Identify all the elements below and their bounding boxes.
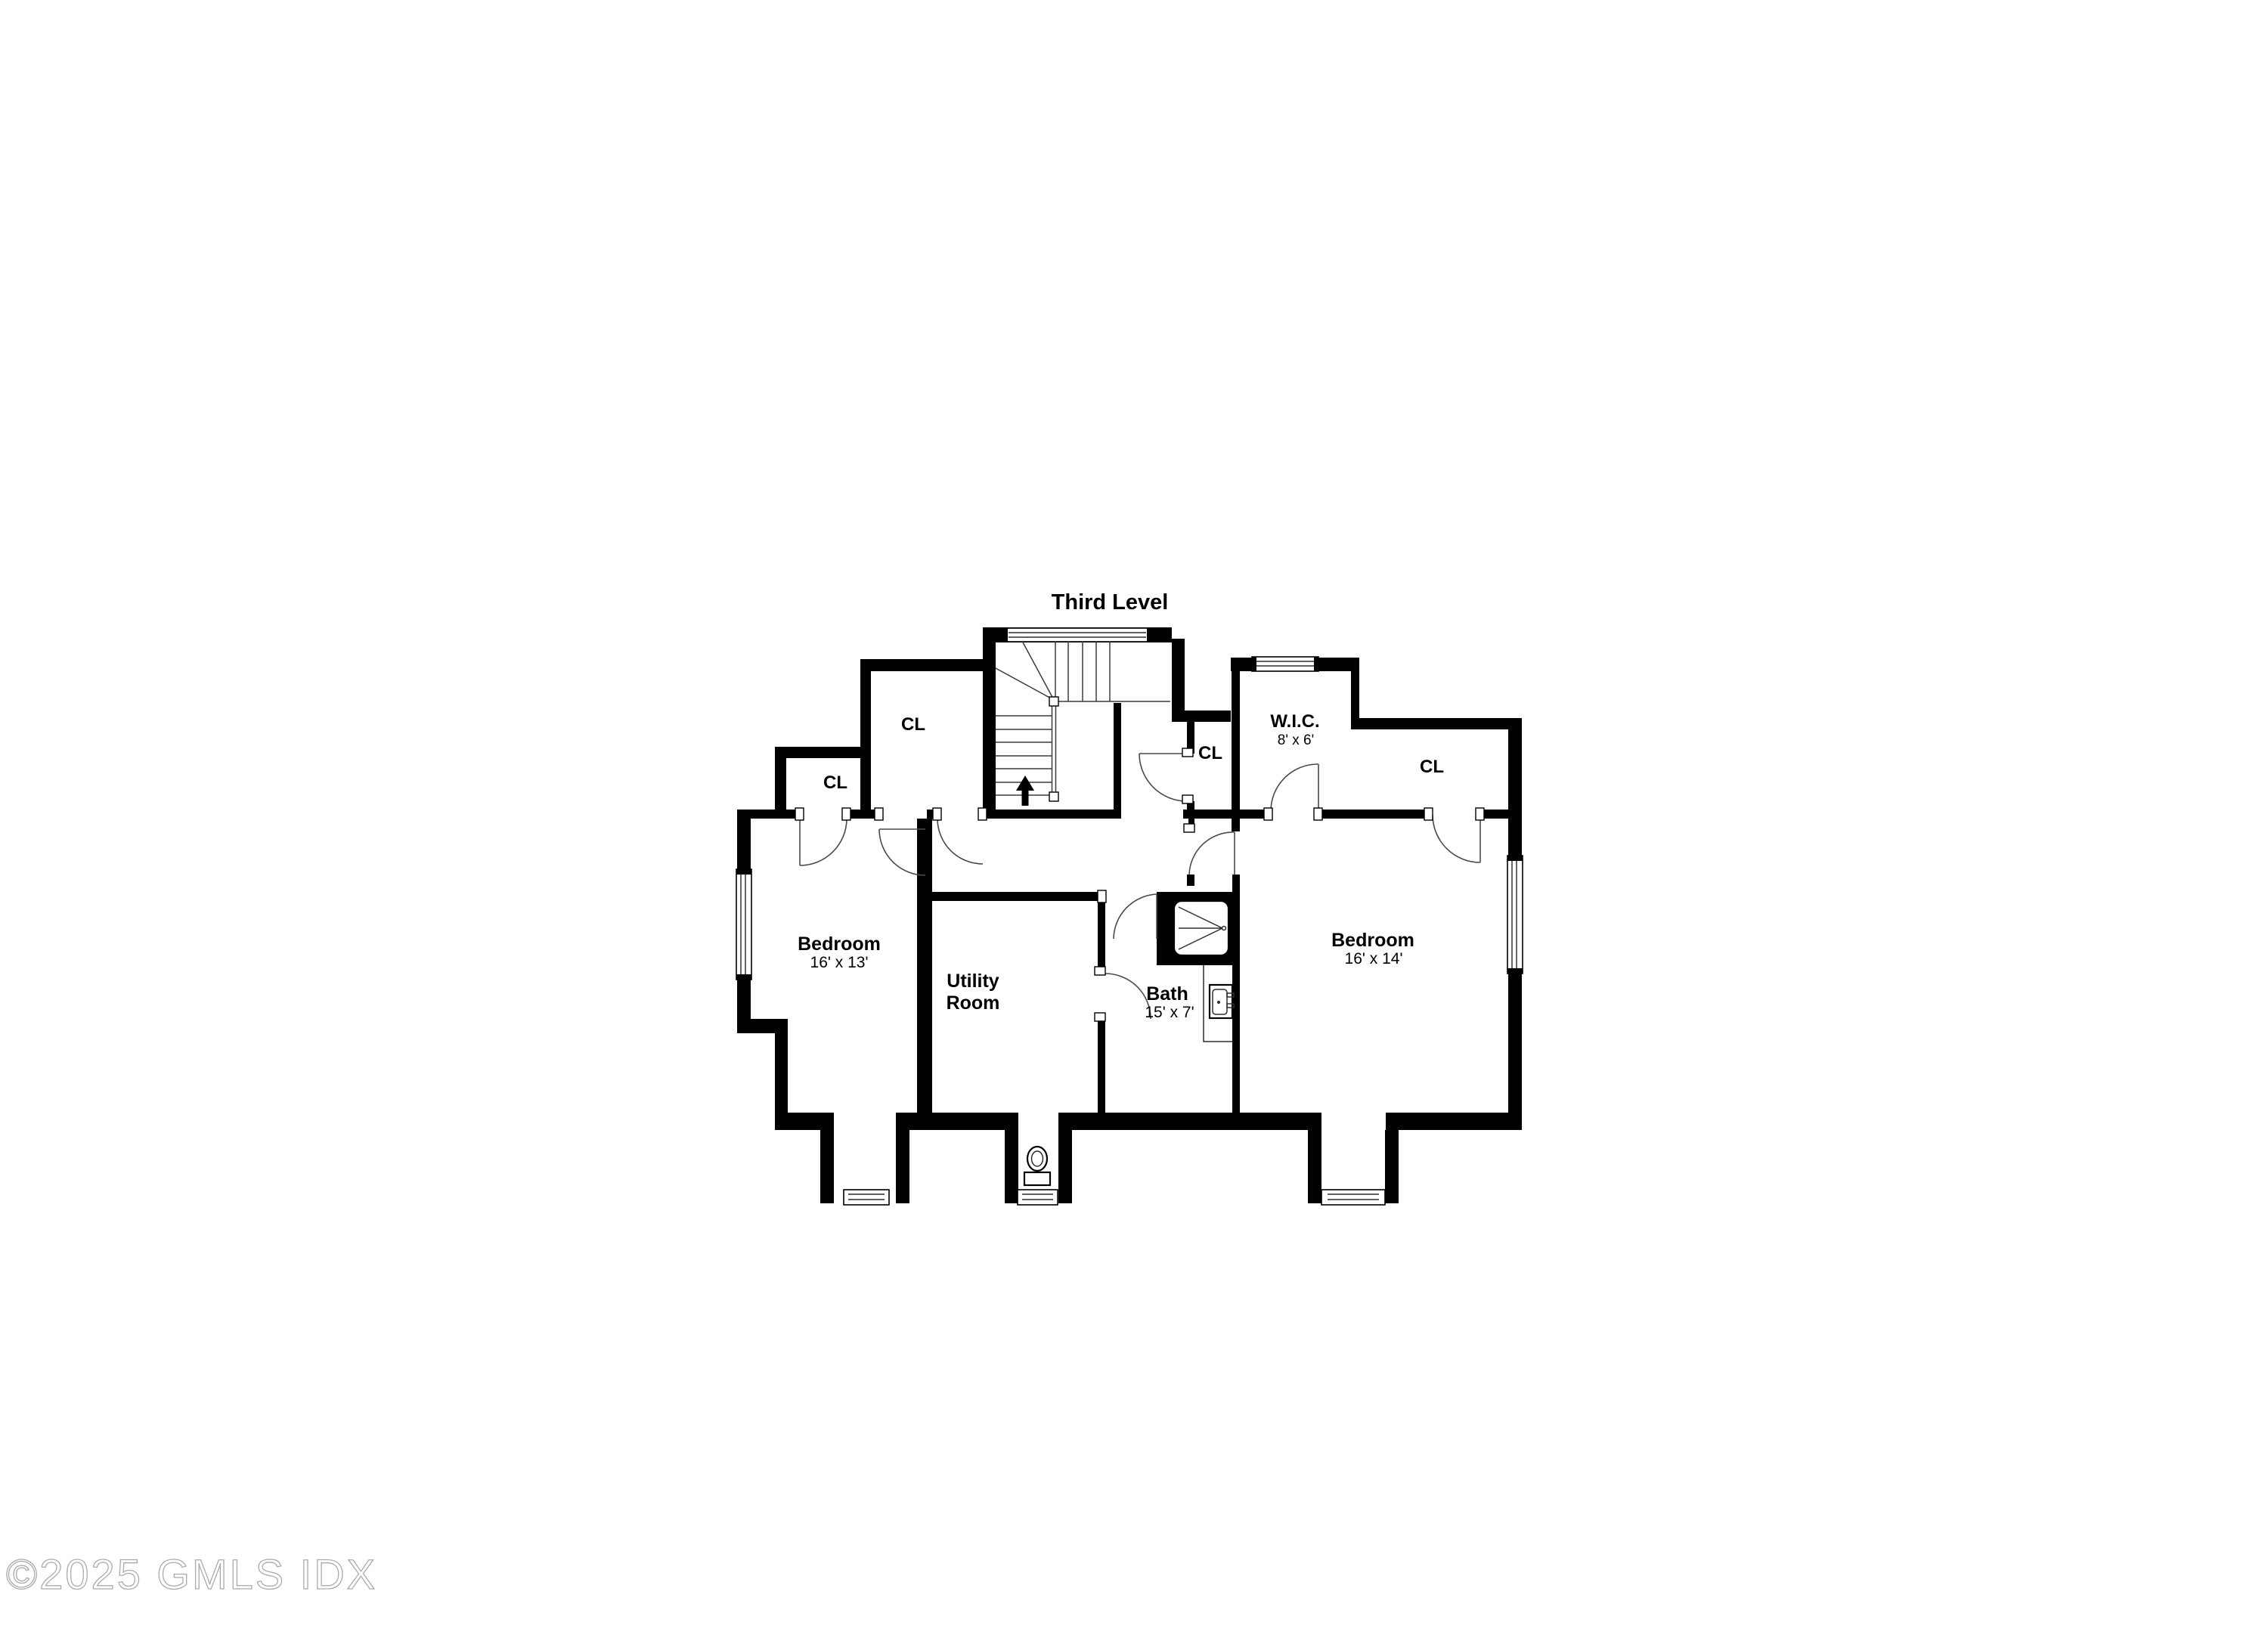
newel-post [1049, 792, 1058, 801]
closet-center-door-swing [1139, 754, 1187, 801]
wall [983, 810, 1120, 819]
dormer-wall [1308, 1130, 1321, 1203]
bedroom-left-dims: 16' x 13' [810, 954, 869, 971]
bath-dormer-window [1018, 1190, 1058, 1205]
closet-upper-left-label: CL [901, 714, 925, 735]
up-arrow-icon [1016, 776, 1034, 806]
wall [739, 810, 800, 819]
plan-title: Third Level [1052, 590, 1169, 615]
dormer-wall [1058, 1130, 1072, 1203]
dormer-wall [820, 1130, 834, 1203]
wall [1187, 875, 1194, 886]
dormer-wall [896, 1130, 909, 1203]
floor-plan: Third Level Bedroom 16' x 13' Utility Ro… [0, 0, 2268, 1647]
wic-dims: 8' x 6' [1278, 732, 1314, 748]
utility-door-swing [1105, 974, 1151, 1019]
closet-right-door-swing [1433, 815, 1480, 862]
watermark: ©2025 GMLS IDX [6, 1550, 377, 1598]
left-bedroom-window [736, 869, 751, 980]
wall [775, 758, 786, 811]
utility-room-label-line2: Room [947, 992, 1000, 1014]
wic-door-swing [1271, 764, 1318, 811]
wall [860, 659, 983, 671]
closet-center-label: CL [1198, 743, 1222, 763]
bedroom-left-label: Bedroom [798, 933, 881, 955]
walls [737, 627, 1522, 1203]
wic-label: W.I.C. [1270, 711, 1319, 732]
wall [1172, 639, 1185, 722]
wall [775, 747, 871, 758]
closet-left-door-swing [800, 819, 847, 865]
wall [1386, 1113, 1508, 1130]
dormer-wall [1385, 1130, 1399, 1203]
wall [1098, 901, 1105, 974]
bedroom-right-label: Bedroom [1331, 930, 1414, 951]
staircase [996, 641, 1170, 806]
left-dormer-window [844, 1190, 889, 1205]
wic-window [1252, 657, 1318, 671]
closet-left-label: CL [823, 772, 847, 793]
bath-label: Bath [1146, 983, 1188, 1005]
doors [795, 748, 1484, 1021]
door-jambs [795, 748, 1484, 1021]
shower-icon [1174, 901, 1228, 955]
right-dormer-window [1321, 1190, 1385, 1205]
bath-dims: 15' x 7' [1145, 1004, 1194, 1021]
utility-room-label-line1: Utility [947, 971, 999, 992]
wall [1318, 810, 1429, 819]
right-bedroom-window [1507, 856, 1523, 974]
fixtures [1024, 901, 1234, 1185]
stairwell-window [1002, 628, 1152, 642]
wall [932, 892, 1105, 901]
wall [1183, 810, 1270, 819]
bedroom-right-door-swing [1189, 832, 1235, 875]
wall [1114, 703, 1121, 819]
hall-door-swing [937, 819, 983, 864]
wall [917, 819, 932, 1113]
wall [1058, 1113, 1321, 1130]
sink-icon [1204, 965, 1234, 1042]
wall [1098, 1019, 1105, 1113]
wall [1185, 711, 1231, 722]
closet-right-label: CL [1420, 757, 1444, 777]
wall [1232, 671, 1240, 831]
dormer-wall [1005, 1130, 1018, 1203]
toilet-icon [1024, 1147, 1050, 1185]
bath-corridor-door-swing [1114, 894, 1157, 939]
bedroom-right-dims: 16' x 14' [1345, 950, 1403, 967]
wall [775, 1113, 834, 1130]
wall [896, 1113, 1018, 1130]
wall [983, 641, 996, 819]
wall [1351, 718, 1522, 729]
newel-post [1049, 697, 1058, 706]
wall [860, 671, 871, 811]
